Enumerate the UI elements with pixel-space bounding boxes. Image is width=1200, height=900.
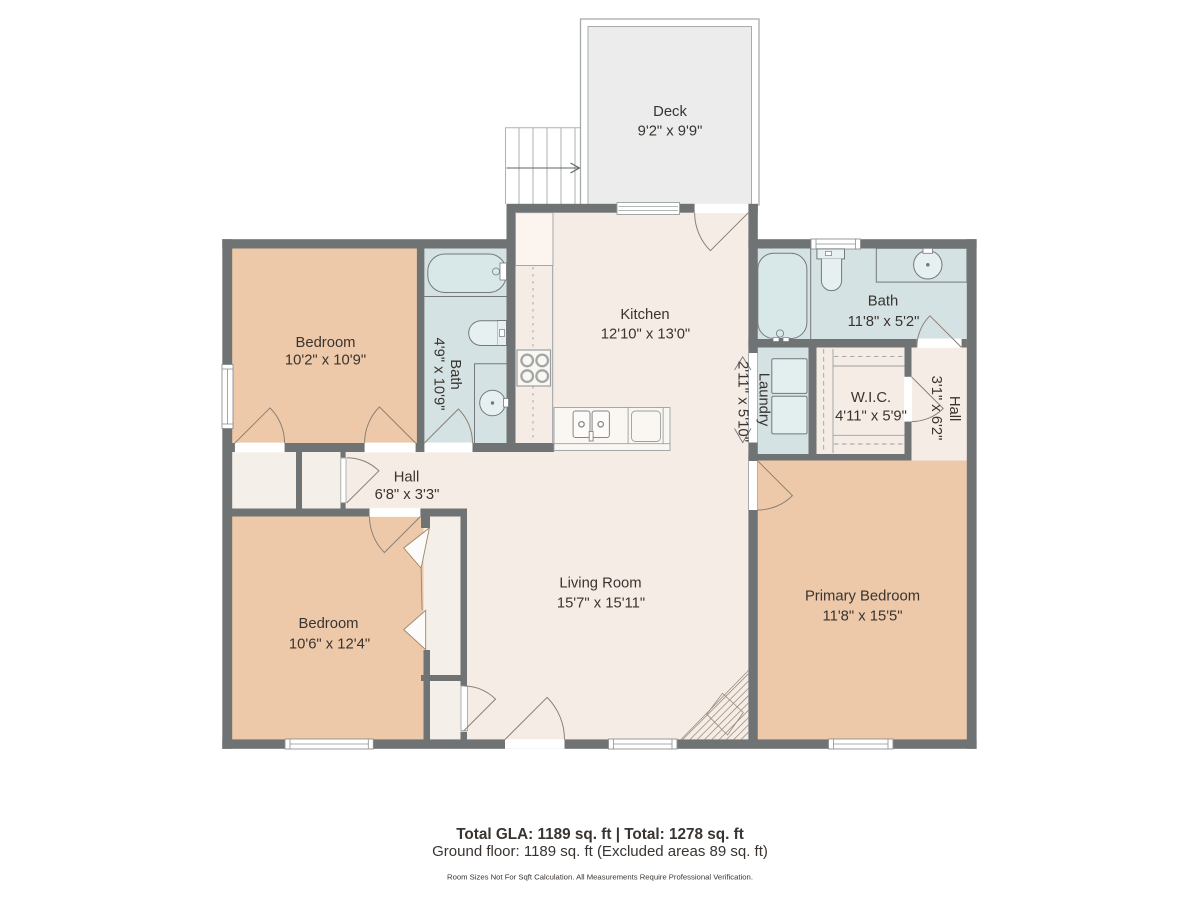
svg-text:Bedroom: Bedroom (295, 335, 355, 351)
svg-text:Bath: Bath (868, 294, 898, 310)
svg-text:4'11" x 5'9": 4'11" x 5'9" (835, 409, 907, 425)
svg-text:Living Room: Living Room (559, 576, 641, 592)
svg-text:Hall: Hall (946, 396, 962, 422)
svg-text:9'2" x 9'9": 9'2" x 9'9" (638, 124, 703, 140)
svg-text:Room Sizes Not For Sqft Calcul: Room Sizes Not For Sqft Calculation. All… (447, 873, 753, 882)
svg-text:4'9" x 10'9": 4'9" x 10'9" (431, 338, 447, 411)
svg-text:Hall: Hall (394, 470, 420, 486)
svg-text:2'11" x 5'10": 2'11" x 5'10" (735, 361, 752, 442)
svg-text:Bath: Bath (447, 359, 463, 389)
svg-text:Bedroom: Bedroom (298, 616, 358, 632)
svg-text:Primary Bedroom: Primary Bedroom (805, 589, 920, 605)
svg-text:10'2" x 10'9": 10'2" x 10'9" (285, 353, 366, 369)
svg-text:6'8" x 3'3": 6'8" x 3'3" (375, 487, 440, 503)
svg-text:11'8" x 5'2": 11'8" x 5'2" (848, 314, 920, 330)
svg-text:Ground floor: 1189 sq. ft (Exc: Ground floor: 1189 sq. ft (Excluded area… (432, 843, 768, 860)
svg-text:Total GLA: 1189 sq. ft | Total: Total GLA: 1189 sq. ft | Total: 1278 sq.… (456, 826, 744, 843)
svg-text:12'10" x 13'0": 12'10" x 13'0" (601, 327, 690, 343)
svg-text:Kitchen: Kitchen (620, 307, 669, 323)
svg-text:15'7" x 15'11": 15'7" x 15'11" (557, 596, 645, 612)
svg-text:Deck: Deck (653, 104, 687, 120)
svg-text:Laundry: Laundry (756, 373, 772, 427)
svg-text:W.I.C.: W.I.C. (851, 390, 891, 406)
svg-text:3'1" x 6'2": 3'1" x 6'2" (928, 376, 944, 441)
svg-text:10'6" x 12'4": 10'6" x 12'4" (289, 637, 370, 653)
svg-text:11'8" x 15'5": 11'8" x 15'5" (822, 609, 902, 625)
